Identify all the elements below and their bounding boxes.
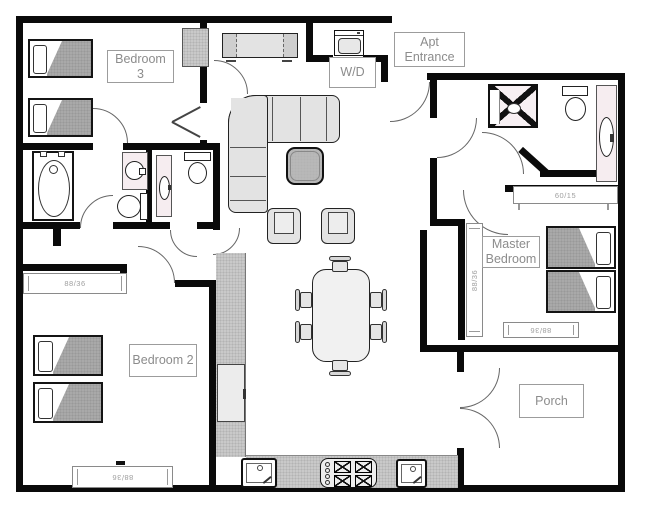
wall: [430, 73, 437, 118]
wall: [213, 148, 220, 230]
bathroom-vanity: [156, 155, 172, 217]
drain-icon: [507, 103, 521, 114]
wall: [197, 222, 220, 229]
wall: [420, 230, 427, 352]
tub-tap-icon: [58, 151, 65, 157]
pillow: [596, 232, 611, 265]
window-master-side: 88/36: [466, 223, 483, 337]
wall: [458, 226, 465, 340]
pillow: [38, 341, 53, 372]
room-label-text: Master Bedroom: [485, 237, 537, 267]
dining-chair: [332, 360, 348, 371]
bifold-door-icon: [172, 106, 201, 122]
burner-icon: [334, 475, 351, 487]
stove-knob-icon: [325, 474, 330, 479]
armchair: [267, 208, 301, 244]
bed: [546, 270, 616, 313]
burner-icon: [355, 475, 372, 487]
wall: [430, 158, 437, 226]
bed: [33, 382, 103, 423]
closet-dim-label: 88/36: [64, 279, 85, 288]
room-label-text: Bedroom 3: [110, 52, 171, 82]
cushion-seam: [272, 97, 273, 141]
faucet-icon: [610, 134, 614, 142]
wall: [209, 280, 216, 492]
faucet-icon: [168, 185, 171, 190]
room-label-bedroom2: Bedroom 2: [129, 344, 197, 377]
wall: [16, 16, 23, 492]
cushion-seam: [230, 147, 266, 148]
room-label-text: Apt Entrance: [397, 35, 462, 65]
folded-sheet: [47, 41, 62, 74]
dining-chair: [382, 289, 387, 311]
window-dim-label: 88/36: [470, 269, 479, 290]
stove-knob-icon: [325, 462, 330, 467]
armchair: [321, 208, 355, 244]
stove: [320, 458, 377, 488]
closet-bedroom2: 88/36: [23, 273, 127, 294]
room-label-wd: W/D: [329, 57, 376, 88]
tub-tap-icon: [40, 151, 47, 157]
wall: [16, 222, 80, 229]
washer-dryer: [334, 30, 364, 56]
stove-knob-icon: [325, 480, 330, 485]
wall: [420, 345, 625, 352]
sofa-feet: [226, 59, 236, 62]
window-tick: [116, 461, 125, 465]
room-label-master-bedroom: Master Bedroom: [482, 236, 540, 268]
fridge-handle-icon: [243, 389, 246, 399]
bed: [28, 39, 93, 78]
kitchen-counter: [216, 253, 246, 457]
sofa-corner-patch: [231, 98, 265, 140]
washer-door-icon: [338, 38, 361, 54]
bathroom-vanity: [122, 152, 148, 190]
sofa-feet: [282, 59, 292, 62]
pillow: [33, 45, 47, 74]
dining-chair: [370, 292, 382, 308]
bifold-door-icon: [172, 121, 201, 137]
cushion-seam: [230, 176, 266, 177]
bed: [546, 226, 616, 269]
folded-sheet: [53, 384, 69, 419]
burner-icon: [334, 461, 351, 473]
cushion-seam: [326, 97, 327, 141]
burner-icon: [355, 461, 372, 473]
folded-sheet: [579, 228, 595, 264]
knob-icon: [357, 32, 360, 34]
dining-chair: [370, 324, 382, 340]
folded-sheet: [53, 337, 69, 372]
kitchen-sink: [396, 459, 427, 488]
room-label-text: W/D: [340, 65, 364, 80]
door-arc-porch-upper: [460, 368, 500, 408]
dining-chair: [300, 292, 312, 308]
door-arc-bedroom2: [138, 246, 175, 283]
wall: [457, 448, 464, 492]
closet-dim-label: 60/15: [555, 191, 576, 200]
faucet-icon: [139, 168, 146, 175]
refrigerator: [217, 364, 245, 422]
wall: [53, 229, 61, 246]
folded-sheet: [47, 100, 62, 133]
door-arc-bathroom1: [80, 195, 113, 228]
room-label-bedroom3: Bedroom 3: [107, 50, 174, 83]
door-arc-porch-lower: [460, 408, 500, 448]
door-arc-bedroom3: [93, 108, 128, 143]
window-dim-label: 88/36: [530, 326, 551, 335]
kitchen-sink: [241, 458, 277, 488]
wall: [16, 16, 392, 23]
pillow: [33, 104, 47, 133]
door-arc-master-bath: [482, 132, 524, 174]
wall: [430, 219, 465, 226]
bed: [33, 335, 103, 376]
dresser: [182, 28, 209, 67]
door-arc-bedroom3-closet: [214, 60, 248, 94]
window-dim-label: 88/36: [112, 473, 133, 482]
window-bedroom2: 88/36: [72, 466, 173, 488]
wall: [381, 60, 388, 82]
door-arc-corridor: [437, 118, 477, 158]
closet-tick: [518, 204, 520, 210]
wall: [427, 73, 625, 80]
dining-chair: [332, 261, 348, 272]
closet-master: 60/15: [513, 186, 618, 204]
closet-tick: [607, 204, 609, 210]
dining-chair: [300, 324, 312, 340]
dining-table: [312, 269, 370, 362]
cushion-seam: [300, 97, 301, 141]
window-master-bottom: 88/36: [503, 322, 579, 338]
bathtub: [32, 151, 74, 221]
shower: [488, 84, 538, 128]
room-label-text: Porch: [535, 394, 568, 409]
door-arc-entrance: [390, 82, 430, 122]
pillow: [596, 276, 611, 309]
dining-chair: [329, 371, 351, 376]
wall: [16, 143, 93, 150]
wall: [113, 222, 170, 229]
bathroom-vanity: [596, 85, 617, 182]
wall: [123, 143, 220, 150]
folded-sheet: [579, 272, 595, 308]
dining-chair: [382, 321, 387, 343]
room-label-porch: Porch: [519, 384, 584, 418]
bed: [28, 98, 93, 137]
room-label-text: Bedroom 2: [132, 353, 193, 368]
wall: [457, 352, 464, 372]
door-arc-hall-right: [213, 228, 240, 255]
floor-plan: 88/36 88/36 88/36 88/36 60/15 Bedroom 3 …: [0, 0, 646, 519]
wall: [618, 73, 625, 492]
pillow: [38, 388, 53, 419]
cushion-seam: [230, 200, 266, 201]
wall: [16, 264, 127, 271]
coffee-table: [286, 147, 324, 185]
stove-knob-icon: [325, 468, 330, 473]
room-label-apt-entrance: Apt Entrance: [394, 32, 465, 67]
sofa-bench: [222, 33, 298, 58]
